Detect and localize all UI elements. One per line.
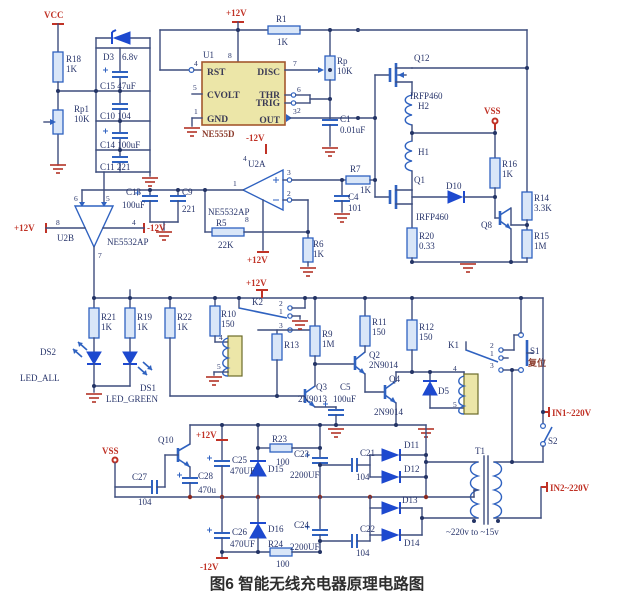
r19-value: 1K: [137, 322, 149, 332]
disc-pin: DISC: [257, 68, 280, 78]
figure-caption: 图6 智能无线充电器原理电路图: [210, 574, 424, 593]
c5-label: C5: [340, 382, 351, 392]
u2a-part: NE5532AP: [208, 207, 250, 217]
r16-label: R16: [502, 159, 518, 169]
q3-label: Q3: [316, 382, 327, 392]
vss2-label: VSS: [102, 446, 119, 456]
s1-label: S1: [530, 346, 540, 356]
resistor-r6: [303, 238, 313, 262]
c9-label: C9: [182, 187, 193, 197]
pin3-label: 3: [293, 107, 297, 116]
in1-label: IN1~220V: [552, 408, 592, 418]
c1-label: C1: [340, 114, 351, 124]
c26-label: C26: [232, 527, 248, 537]
vcc-reference-block: VCC R18 1K Rp1 10K D3 6.8v C15 47uF C10 …: [44, 10, 158, 186]
r24-value: 100: [276, 559, 290, 569]
resistor-r11: [360, 316, 370, 346]
h2-label: H2: [418, 101, 429, 111]
r20-value: 0.33: [419, 241, 435, 251]
r7-value: 1K: [360, 185, 372, 195]
k2-pin4: 4: [219, 333, 223, 342]
d5-label: D5: [438, 386, 449, 396]
capacitor-c1: [322, 120, 338, 146]
minus12v-u2b-label: -12V: [147, 223, 166, 233]
q3-part: 2N9013: [298, 394, 327, 404]
d10-label: D10: [446, 181, 462, 191]
resistor-r9: [310, 326, 320, 356]
r6-value: 1K: [313, 249, 325, 259]
diode-d5: [423, 372, 437, 408]
transistor-q2: [355, 352, 365, 374]
d3-value: 6.8v: [122, 52, 138, 62]
resistor-r15: [522, 230, 532, 258]
pin8-label: 8: [228, 51, 232, 60]
r12-value: 150: [419, 332, 433, 342]
k1-pin3: 3: [490, 361, 494, 370]
r21-value: 1K: [101, 322, 113, 332]
ds2-label: DS2: [40, 347, 56, 357]
k1-pin1: 1: [490, 349, 494, 358]
resistor-r22: [165, 308, 175, 338]
c5-value: 100uF: [333, 394, 356, 404]
capacitor-c28: [177, 467, 198, 497]
led-green-label: LED_GREEN: [106, 394, 158, 404]
ne555-timer-block: +12V -12V U1 8 RST CVOLT GND DISC THR TR…: [160, 8, 375, 156]
c22-value: 104: [356, 548, 370, 558]
k2-pin1: 1: [279, 307, 283, 316]
c23-value: 2200UF: [290, 470, 320, 480]
c11-label: C11 221: [100, 162, 130, 172]
u2a-pin8: 8: [245, 215, 249, 224]
resistor-r5: [212, 228, 244, 236]
capacitor-c26: [207, 497, 230, 558]
d13-label: D13: [402, 495, 418, 505]
c9-value: 221: [182, 204, 196, 214]
resistor-r21: [89, 308, 99, 338]
pin2-label: 2: [297, 106, 301, 115]
plus12v-rail-label: +12V: [246, 278, 267, 288]
resistor-r20: [407, 228, 417, 258]
diode-d15: [250, 425, 266, 497]
k1-label: K1: [448, 340, 459, 350]
led-ds2: [73, 342, 101, 364]
r24-label: R24: [268, 539, 284, 549]
trig-pin: TRIG: [256, 99, 281, 109]
resistor-r23: [270, 444, 292, 452]
q1-part: IRFP460: [416, 212, 449, 222]
vcc-label: VCC: [44, 10, 64, 20]
r11-value: 150: [372, 327, 386, 337]
resistor-r7: [346, 176, 370, 184]
r1-label: R1: [276, 14, 287, 24]
c4-label: C4: [348, 192, 359, 202]
t1-ratio-label: ~220v to ~15v: [446, 527, 499, 537]
transistor-q10: [165, 425, 190, 467]
resistor-r1: [268, 26, 300, 34]
c13-label: C13: [126, 187, 142, 197]
mosfet-q12: [375, 63, 412, 87]
pin1-label: 1: [194, 107, 198, 116]
capacitor-c5: [323, 402, 344, 426]
u2a-pin4: 4: [243, 154, 247, 163]
pin4-label: 4: [194, 59, 198, 68]
vss-flag-icon: [493, 119, 498, 124]
r12-label: R12: [419, 322, 434, 332]
resistor-r24: [270, 548, 292, 556]
r5-label: R5: [216, 218, 227, 228]
rp-label: Rp: [337, 56, 348, 66]
r9-label: R9: [322, 329, 333, 339]
r19-label: R19: [137, 312, 153, 322]
k1-pin5: 5: [453, 400, 457, 409]
u2b-opamp-block: +12V -12V 8 4 6 5 7 U2B NE5532AP: [14, 172, 166, 298]
minus12v-555-label: -12V: [246, 133, 265, 143]
pin6-label: 6: [297, 85, 301, 94]
u1-label: U1: [203, 50, 214, 60]
r15-label: R15: [534, 231, 550, 241]
cvolt-pin: CVOLT: [207, 91, 240, 101]
u2b-pin8: 8: [56, 218, 60, 227]
plus12v-u2a-label: +12V: [247, 255, 268, 265]
u2b-label: U2B: [57, 233, 74, 243]
r18-label: R18: [66, 54, 82, 64]
r7-label: R7: [350, 164, 361, 174]
rst-pin: RST: [207, 68, 226, 78]
d3-label: D3: [103, 52, 114, 62]
circuit-schematic: VCC R18 1K Rp1 10K D3 6.8v C15 47uF C10 …: [0, 0, 635, 608]
q4-label: Q4: [389, 374, 400, 384]
mains-input-block: IN1~220V IN2~220V T1 ~220v to ~15v S2: [422, 298, 592, 537]
resistor-r19: [125, 308, 135, 338]
potentiometer-rp: [325, 30, 335, 99]
r16-value: 1K: [502, 169, 514, 179]
capacitor-c21: [352, 458, 370, 472]
r22-value: 1K: [177, 322, 189, 332]
r15-value: 1M: [534, 241, 547, 251]
out-pin: OUT: [259, 116, 280, 126]
r13-label: R13: [284, 340, 300, 350]
potentiometer-rp1: [44, 110, 63, 134]
r23-value: 100: [276, 457, 290, 467]
u2a-pin3: 3: [287, 168, 291, 177]
r9-value: 1M: [322, 339, 335, 349]
k1-pin4: 4: [453, 364, 457, 373]
resistor-r13: [272, 334, 282, 360]
plus12v-bl-label: +12V: [196, 430, 217, 440]
c24-label: C24: [294, 520, 310, 530]
diode-d10: [448, 191, 464, 203]
r18-value: 1K: [66, 64, 78, 74]
k2-pin5: 5: [217, 362, 221, 371]
vss1-label: VSS: [484, 106, 501, 116]
transistor-q8: [495, 197, 511, 262]
c13-value: 100uF: [122, 200, 145, 210]
r1-value: 1K: [277, 37, 289, 47]
schematic-page: VCC R18 1K Rp1 10K D3 6.8v C15 47uF C10 …: [0, 0, 635, 608]
q12-part: IRFP460: [410, 91, 443, 101]
c1-value: 0.01uF: [340, 125, 365, 135]
q2-label: Q2: [369, 350, 380, 360]
r10-value: 150: [221, 319, 235, 329]
zener-d3: [112, 30, 130, 44]
plus12v-u2b-label: +12V: [14, 223, 35, 233]
resistor-r12: [407, 320, 417, 350]
q1-label: Q1: [414, 175, 425, 185]
power-stage-block: Q12 IRFP460 H2 H1 VSS Q1 IRFP460 R20 0.3…: [358, 30, 552, 272]
vss2-flag-icon: [113, 458, 118, 463]
r5-value: 22K: [218, 240, 234, 250]
r21-label: R21: [101, 312, 116, 322]
relay-driver-block: +12V: [170, 278, 546, 462]
led-all-label: LED_ALL: [20, 373, 60, 383]
c15-label: C15 47uF: [100, 81, 136, 91]
u2b-pin5: 5: [106, 194, 110, 203]
c27-label: C27: [132, 472, 148, 482]
c27-value: 104: [138, 497, 152, 507]
c25-label: C25: [232, 455, 248, 465]
r11-label: R11: [372, 317, 387, 327]
d16-label: D16: [268, 524, 284, 534]
pin7-label: 7: [293, 59, 297, 68]
transistor-q4: [385, 381, 396, 403]
t1-label: T1: [475, 446, 485, 456]
inductor-h1: [405, 141, 412, 171]
r23-label: R23: [272, 434, 288, 444]
rp1-label: Rp1: [74, 104, 89, 114]
r6-label: R6: [313, 239, 324, 249]
c25-value: 470UF: [230, 466, 255, 476]
u2a-pin1: 1: [233, 179, 237, 188]
c24-value: 2200UF: [290, 542, 320, 552]
q8-label: Q8: [481, 220, 492, 230]
h1-label: H1: [418, 147, 429, 157]
led-ds1: [123, 352, 152, 375]
psu-block: VSS +12V: [102, 423, 474, 572]
c14-label: C14 100uF: [100, 140, 140, 150]
c28-label: C28: [198, 471, 214, 481]
u2b-pin4: 4: [132, 218, 136, 227]
u2b-pin6: 6: [74, 194, 78, 203]
rp-value: 10K: [337, 66, 353, 76]
u2b-pin7: 7: [98, 251, 102, 260]
c21-label: C21: [360, 448, 375, 458]
pin5-label: 5: [193, 83, 197, 92]
d12-label: D12: [404, 464, 420, 474]
in2-label: IN2~220V: [550, 483, 590, 493]
c21-value: 104: [356, 472, 370, 482]
relay-k2-contacts: [239, 298, 310, 332]
c26-value: 470UF: [230, 539, 255, 549]
r10-label: R10: [221, 309, 237, 319]
k2-label: K2: [252, 297, 263, 307]
q12-label: Q12: [414, 53, 430, 63]
r14-label: R14: [534, 193, 550, 203]
u2b-part: NE5532AP: [107, 237, 149, 247]
plus12v-555-label: +12V: [226, 8, 247, 18]
q4-part: 2N9014: [374, 407, 403, 417]
c22-label: C22: [360, 524, 375, 534]
diode-d11: [370, 449, 426, 461]
r20-label: R20: [419, 231, 435, 241]
c10-label: C10 104: [100, 111, 131, 121]
c4-value: 101: [348, 203, 362, 213]
c23-label: C23: [294, 449, 310, 459]
s2-label: S2: [548, 436, 558, 446]
r14-value: 3.3K: [534, 203, 552, 213]
resistor-r10: [210, 306, 220, 336]
minus12v-bl-label: -12V: [200, 562, 219, 572]
q2-part: 2N9014: [369, 360, 398, 370]
r22-label: R22: [177, 312, 192, 322]
capacitor-c22: [352, 534, 370, 548]
capacitor-c23: [305, 425, 328, 497]
u2a-label: U2A: [248, 159, 266, 169]
k2-pin3: 3: [279, 321, 283, 330]
resistor-r16: [490, 158, 500, 188]
u2a-pin2: 2: [287, 189, 291, 198]
mosfet-q1: [375, 185, 412, 209]
ds1-label: DS1: [140, 383, 156, 393]
d14-label: D14: [404, 538, 420, 548]
gnd-pin: GND: [207, 115, 228, 125]
resistor-r14: [522, 192, 532, 220]
d11-label: D11: [404, 440, 419, 450]
q10-label: Q10: [158, 435, 174, 445]
c28-value: 470u: [198, 485, 217, 495]
capacitor-c27: [152, 480, 165, 494]
rp1-value: 10K: [74, 114, 90, 124]
ne555d-label: NE555D: [202, 129, 235, 139]
